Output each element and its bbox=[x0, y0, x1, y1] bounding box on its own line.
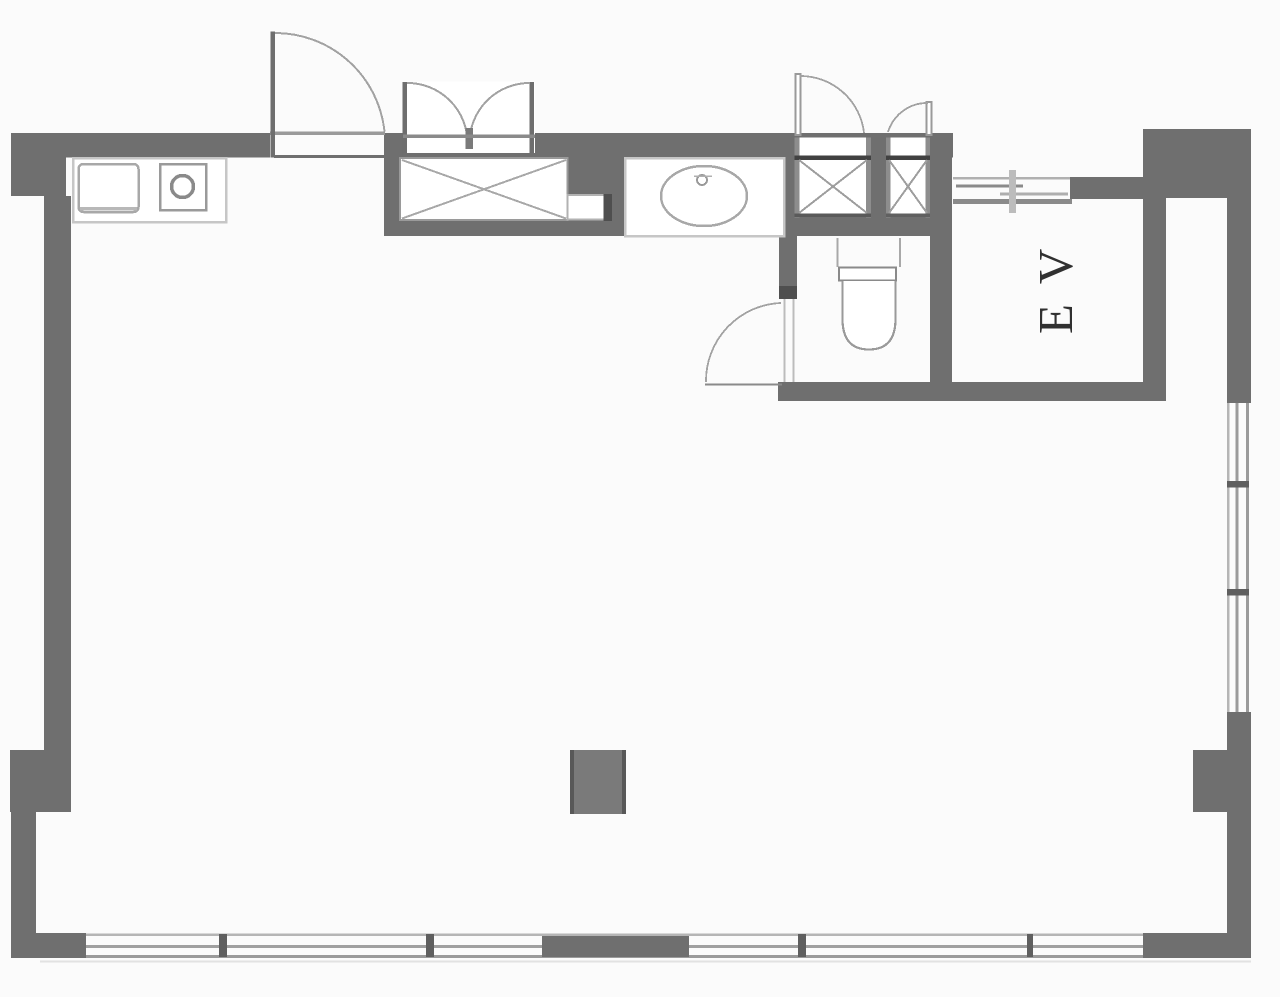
svg-text:EV: EV bbox=[1028, 229, 1083, 334]
